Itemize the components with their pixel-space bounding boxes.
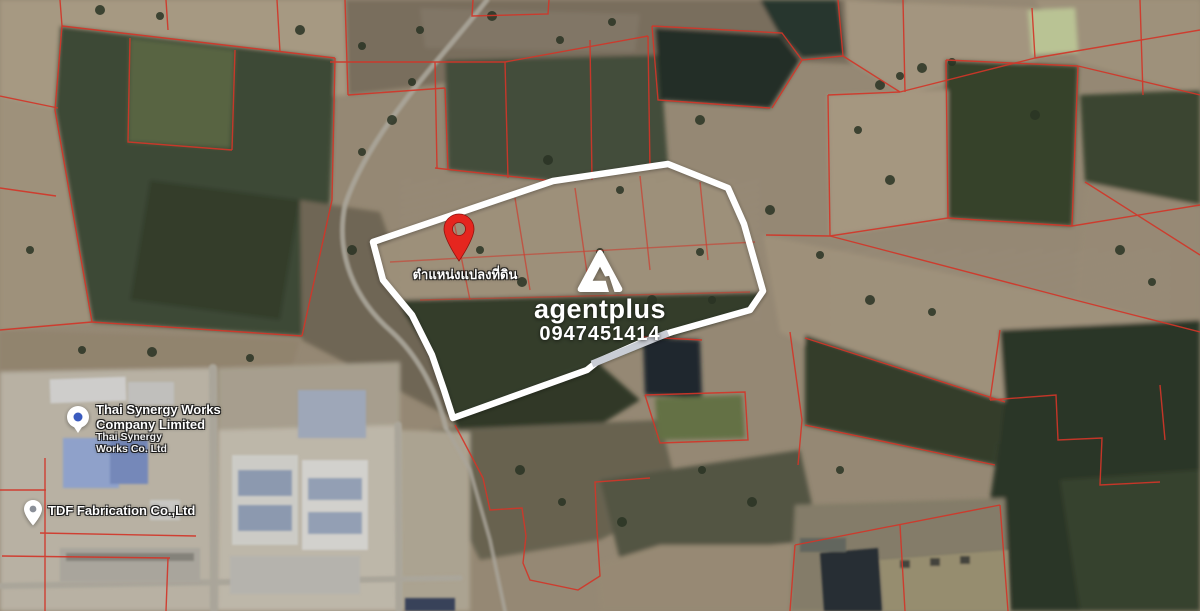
poi-name-line: Company Limited (96, 418, 221, 433)
brand-watermark: agentplus 0947451414 (530, 250, 670, 346)
poi-subname-line: Works Co. Ltd (96, 444, 221, 456)
property-pin-label: ตำแหน่งแปลงที่ดิน (395, 268, 535, 283)
property-pin-icon[interactable] (441, 213, 477, 263)
business-dot-marker-icon (64, 403, 92, 437)
agentplus-logo-icon (577, 250, 623, 292)
teardrop-pin-marker-icon (22, 499, 44, 527)
poi-tdf-fabrication[interactable]: TDF Fabrication Co.,Ltd (22, 499, 195, 527)
poi-thai-synergy[interactable]: Thai Synergy Works Company Limited Thai … (64, 403, 221, 456)
poi-name-line: TDF Fabrication Co.,Ltd (48, 504, 195, 519)
brand-phone: 0947451414 (539, 323, 660, 346)
brand-name: agentplus (534, 294, 666, 325)
poi-name-line: Thai Synergy Works (96, 403, 221, 418)
map-viewport[interactable]: ตำแหน่งแปลงที่ดิน agentplus 0947451414 (0, 0, 1200, 611)
